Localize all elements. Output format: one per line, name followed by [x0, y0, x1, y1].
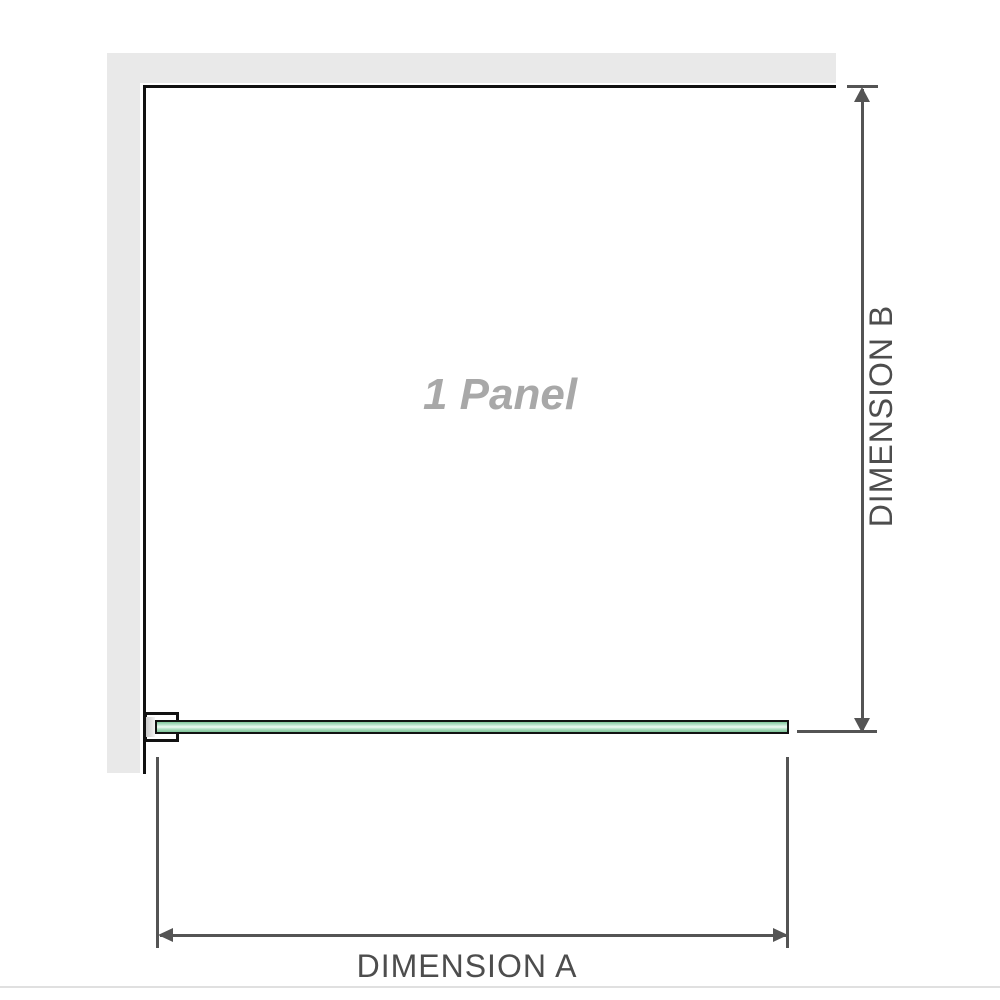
panel-outline-left — [143, 85, 146, 774]
arrow-right-icon — [773, 928, 788, 942]
dimension-a-line — [160, 934, 786, 937]
panel-outline-top — [143, 85, 836, 88]
dimension-a-tick-left — [156, 757, 159, 948]
left-wall — [107, 53, 140, 773]
wall-bracket-shade — [146, 717, 155, 737]
dimension-b-label: DIMENSION B — [866, 96, 896, 736]
glass-panel — [155, 720, 789, 734]
panel-count-label: 1 Panel — [250, 370, 750, 420]
dimension-a-tick-right — [786, 757, 789, 948]
top-wall — [107, 53, 836, 83]
dimension-diagram: 1 Panel DIMENSION B DIMENSION A — [0, 0, 1000, 1000]
arrow-left-icon — [158, 928, 173, 942]
dimension-a-label: DIMENSION A — [167, 949, 767, 983]
bottom-separator — [0, 986, 1000, 988]
